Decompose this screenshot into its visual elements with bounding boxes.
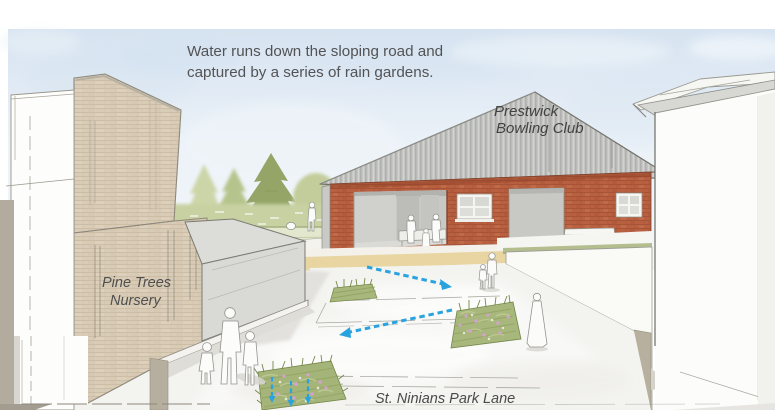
svg-text:St. Ninians Park Lane: St. Ninians Park Lane [375,391,515,407]
svg-text:Bowling Club: Bowling Club [496,120,584,137]
svg-text:Prestwick: Prestwick [494,103,560,120]
svg-text:Nursery: Nursery [110,293,162,309]
svg-text:Water runs down the sloping ro: Water runs down the sloping road and [187,43,443,60]
svg-text:captured by a series of rain g: captured by a series of rain gardens. [187,64,434,81]
svg-text:Pine Trees: Pine Trees [102,275,171,291]
